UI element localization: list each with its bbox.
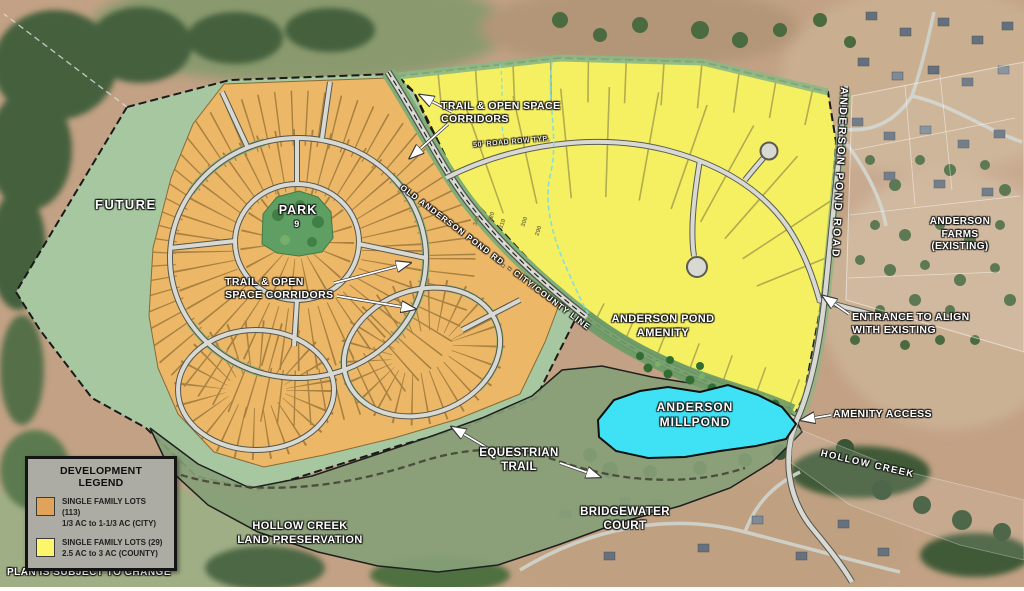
label-trail-corridors-top: TRAIL & OPEN SPACE CORRIDORS bbox=[441, 100, 560, 126]
legend-item-city-text: SINGLE FAMILY LOTS (113) 1/3 AC to 1-1/3… bbox=[62, 496, 166, 530]
legend-swatch-city bbox=[36, 497, 55, 516]
label-bridgewater-court: BRIDGEWATER COURT bbox=[580, 505, 670, 534]
development-legend: DEVELOPMENT LEGEND SINGLE FAMILY LOTS (1… bbox=[25, 456, 177, 571]
legend-item-county: SINGLE FAMILY LOTS (29) 2.5 AC to 3 AC (… bbox=[36, 537, 166, 559]
legend-title: DEVELOPMENT LEGEND bbox=[36, 465, 166, 489]
label-park: PARK bbox=[279, 203, 318, 219]
label-equestrian-trail: EQUESTRIAN TRAIL bbox=[479, 446, 558, 475]
legend-item-county-text: SINGLE FAMILY LOTS (29) 2.5 AC to 3 AC (… bbox=[62, 537, 162, 559]
legend-swatch-county bbox=[36, 538, 55, 557]
label-amenity-access: AMENITY ACCESS bbox=[833, 408, 932, 421]
label-trail-corridors-mid: TRAIL & OPEN SPACE CORRIDORS bbox=[225, 276, 333, 302]
label-anderson-millpond: ANDERSON MILLPOND bbox=[657, 400, 734, 430]
label-anderson-farms: ANDERSON FARMS (EXISTING) bbox=[928, 216, 992, 254]
label-hollow-creek-land: HOLLOW CREEK LAND PRESERVATION bbox=[237, 520, 362, 548]
label-park-number: 9 bbox=[294, 219, 299, 230]
label-anderson-pond-amenity: ANDERSON POND AMENITY bbox=[612, 313, 715, 341]
legend-item-city: SINGLE FAMILY LOTS (113) 1/3 AC to 1-1/3… bbox=[36, 496, 166, 530]
site-plan-map: TRAIL & OPEN SPACE CORRIDORS FUTURE PARK… bbox=[0, 0, 1024, 591]
label-entrance: ENTRANCE TO ALIGN WITH EXISTING bbox=[852, 311, 970, 337]
label-future: FUTURE bbox=[95, 197, 157, 213]
